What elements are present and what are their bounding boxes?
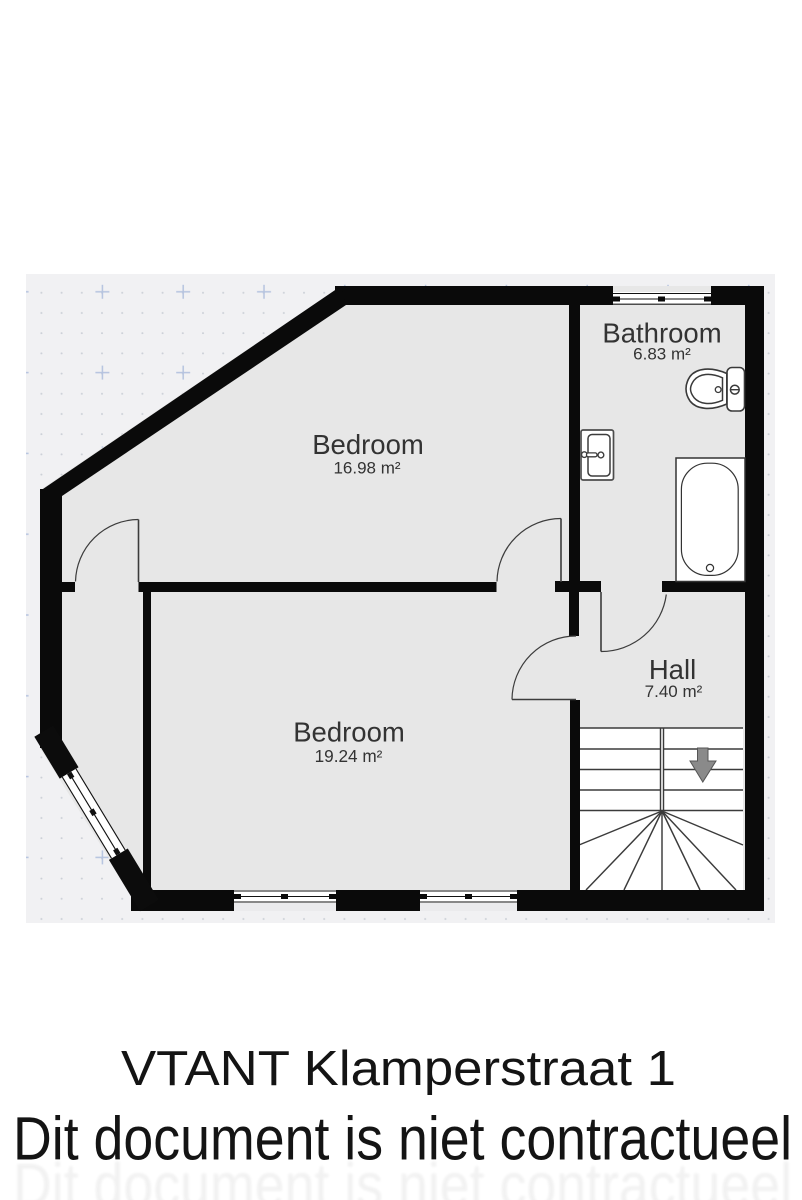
svg-text:Dit document is niet contractu: Dit document is niet contractueel (13, 1151, 792, 1200)
svg-text:6.83 m²: 6.83 m² (633, 345, 691, 364)
svg-text:7.40 m²: 7.40 m² (645, 682, 703, 701)
svg-text:Bedroom: Bedroom (312, 429, 424, 460)
svg-text:16.98 m²: 16.98 m² (333, 459, 400, 478)
svg-text:19.24 m²: 19.24 m² (315, 746, 383, 766)
svg-text:Bedroom: Bedroom (293, 717, 405, 748)
svg-text:Hall: Hall (649, 654, 696, 685)
svg-text:VTANT Klamperstraat 1: VTANT Klamperstraat 1 (121, 1041, 676, 1096)
